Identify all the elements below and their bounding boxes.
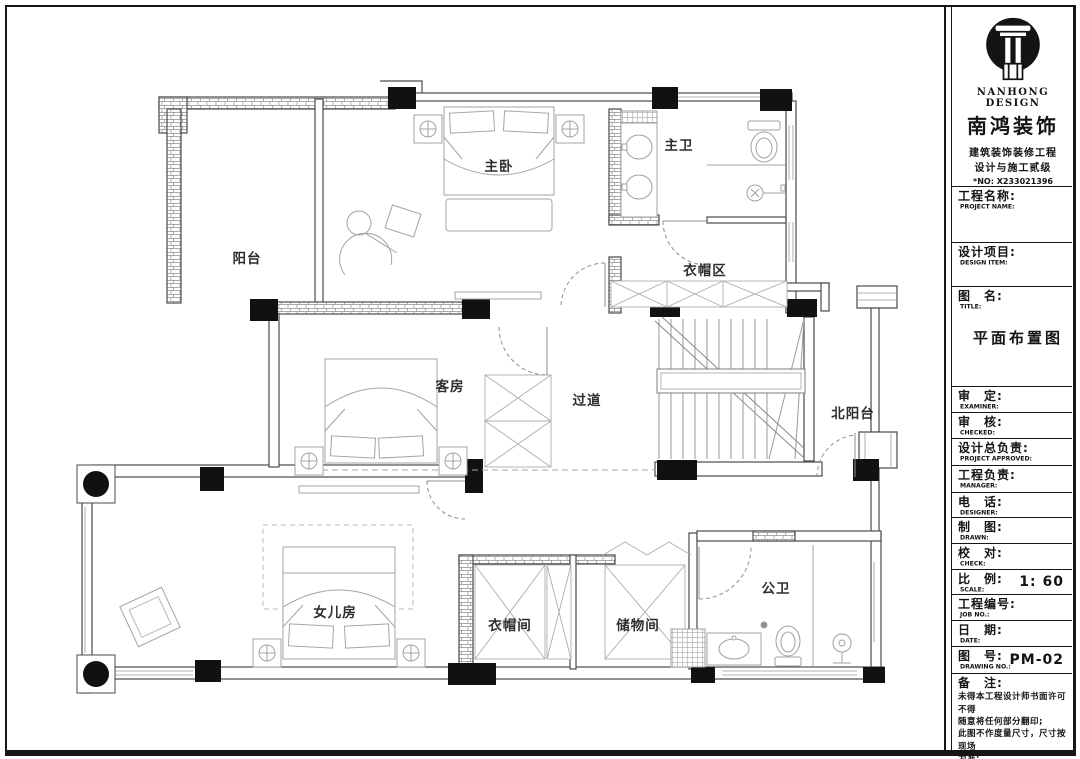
room-label-storage-room: 储物间 [616,614,660,634]
master-bath-fixtures [621,111,786,217]
field-label-en: CHECKED: [960,430,1055,437]
field-checked: 审 核: CHECKED: [952,413,1072,439]
note-line: 未得本工程设计师书面许可不得 [958,691,1068,716]
notes-block: 备 注: 未得本工程设计师书面许可不得 随意将任何部分翻印; 此图不作度量尺寸，… [952,674,1072,759]
field-label-en: DRAWN: [960,535,1055,542]
note-line: 此图不作度量尺寸，尺寸按现场 [958,728,1068,753]
note-line: 为准; [958,753,1068,759]
room-label-cloakroom: 衣帽间 [488,614,532,634]
field-label-en: PROJECT NAME: [960,204,1055,211]
room-label-corridor: 过道 [573,389,602,409]
field-label-cn: 工程负责: [958,469,1068,483]
room-label-cloak-area: 衣帽区 [683,259,727,279]
brand-name-en: NANHONG DESIGN [958,87,1068,109]
note-line: 随意将任何部分翻印; [958,716,1068,728]
field-scale: 比 例: SCALE: 1: 60 [952,570,1072,595]
company-logo-block: NANHONG DESIGN 南鸿装饰 建筑装饰装修工程 设计与施工贰级 *NO… [952,7,1072,187]
field-label-en: CHECK: [960,561,1055,568]
field-drawn: 制 图: DRAWN: [952,518,1072,543]
field-label-cn: 审 定: [958,390,1068,404]
field-label-en: DATE: [960,638,1055,645]
floor-plan-drawing [7,7,943,752]
field-label-cn: 设计项目: [958,246,1068,260]
field-drawing-title: 图 名: TITLE: 平面布置图 [952,287,1072,387]
room-label-north-balcony: 北阳台 [831,402,875,422]
field-label-cn: 工程名称: [958,190,1068,204]
stairs [655,317,805,459]
field-examiner: 审 定: EXAMINER: [952,387,1072,413]
notes-label: 备 注: [958,677,1068,691]
field-label-en: MANAGER: [960,483,1055,490]
column-logo-icon [982,17,1044,81]
public-bath-fixtures [671,545,851,667]
field-design-item: 设计项目: DESIGN ITEM: [952,243,1072,287]
field-label-cn: 设计总负责: [958,442,1068,456]
room-label-balcony: 阳台 [233,247,262,267]
field-date: 日 期: DATE: [952,621,1072,647]
field-label-cn: 校 对: [958,547,1068,561]
field-label-cn: 电 话: [958,496,1068,510]
daughter-room-furniture [120,525,425,667]
scale-value: 1: 60 [1019,574,1064,590]
field-label-en: PROJECT APPROVED: [960,456,1055,463]
field-project-name: 工程名称: PROJECT NAME: [952,187,1072,243]
cert-number: *NO: X233021396 [958,177,1068,186]
field-drawing-no: 图 号: DRAWING NO.: PM-02 [952,647,1072,674]
field-label-en: JOB NO.: [960,612,1055,619]
floor-plan: 阳台 主卧 主卫 衣帽区 客房 过道 北阳台 女儿房 衣帽间 储物间 公卫 [7,7,943,752]
field-label-cn: 图 名: [958,290,1068,304]
master-bedroom-furniture [340,107,584,299]
field-check: 校 对: CHECK: [952,544,1072,570]
drawing-no-value: PM-02 [1010,652,1065,668]
drawing-title-value: 平面布置图 [958,327,1068,348]
field-phone-designer: 电 话: DESIGNER: [952,493,1072,518]
title-block: NANHONG DESIGN 南鸿装饰 建筑装饰装修工程 设计与施工贰级 *NO… [944,7,1074,750]
field-label-en: DESIGNER: [960,510,1055,517]
room-label-master-bedroom: 主卧 [485,155,514,175]
field-label-en: EXAMINER: [960,404,1055,411]
field-job-no: 工程编号: JOB NO.: [952,595,1072,621]
room-label-daughter-room: 女儿房 [313,601,357,621]
field-project-approved: 设计总负责: PROJECT APPROVED: [952,439,1072,466]
field-label-cn: 审 核: [958,416,1068,430]
drawing-sheet: 阳台 主卧 主卫 衣帽区 客房 过道 北阳台 女儿房 衣帽间 储物间 公卫 [0,0,1080,759]
room-label-guest-room: 客房 [436,375,465,395]
room-label-master-bath: 主卫 [665,134,694,154]
field-label-en: DESIGN ITEM: [960,260,1055,267]
room-label-public-bath: 公卫 [762,577,791,597]
field-label-en: TITLE: [960,304,1055,311]
field-manager: 工程负责: MANAGER: [952,466,1072,493]
cert-line-1: 建筑装饰装修工程 [958,144,1068,159]
cert-line-2: 设计与施工贰级 [958,159,1068,174]
brand-name-cn: 南鸿装饰 [958,110,1068,139]
